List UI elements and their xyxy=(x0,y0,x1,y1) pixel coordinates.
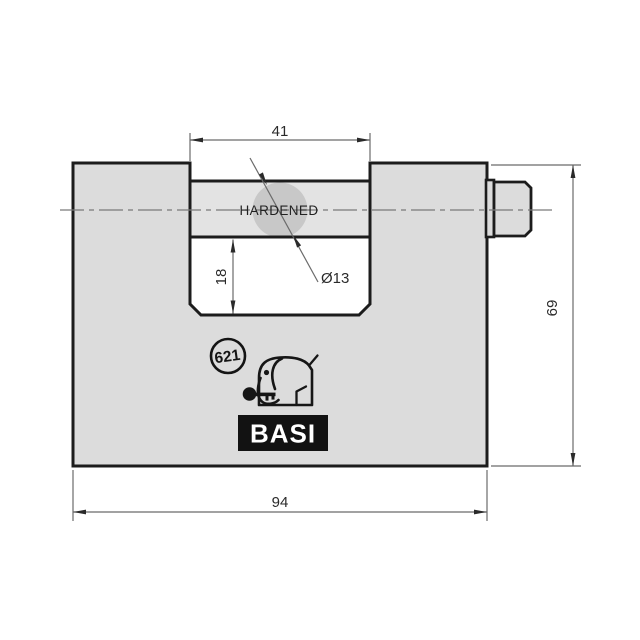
technical-drawing-page: 41 18 Ø13 94 xyxy=(0,0,640,640)
dim-94-label: 94 xyxy=(272,494,289,511)
dim-41-label: 41 xyxy=(272,123,289,140)
brand-logo: BASI xyxy=(238,415,328,451)
dimension-18: 18 xyxy=(213,240,235,314)
dimension-41: 41 xyxy=(190,123,370,161)
padlock-dimension-drawing: 41 18 Ø13 94 xyxy=(0,0,640,640)
dimension-94: 94 xyxy=(73,470,487,521)
dim-dia13-label: Ø13 xyxy=(321,270,349,287)
hardened-label: HARDENED xyxy=(240,203,319,218)
model-badge-label: 621 xyxy=(213,347,241,367)
brand-logo-label: BASI xyxy=(250,419,316,449)
dim-69-label: 69 xyxy=(544,300,561,317)
dim-18-label: 18 xyxy=(213,269,230,286)
cylinder-end xyxy=(494,182,531,236)
